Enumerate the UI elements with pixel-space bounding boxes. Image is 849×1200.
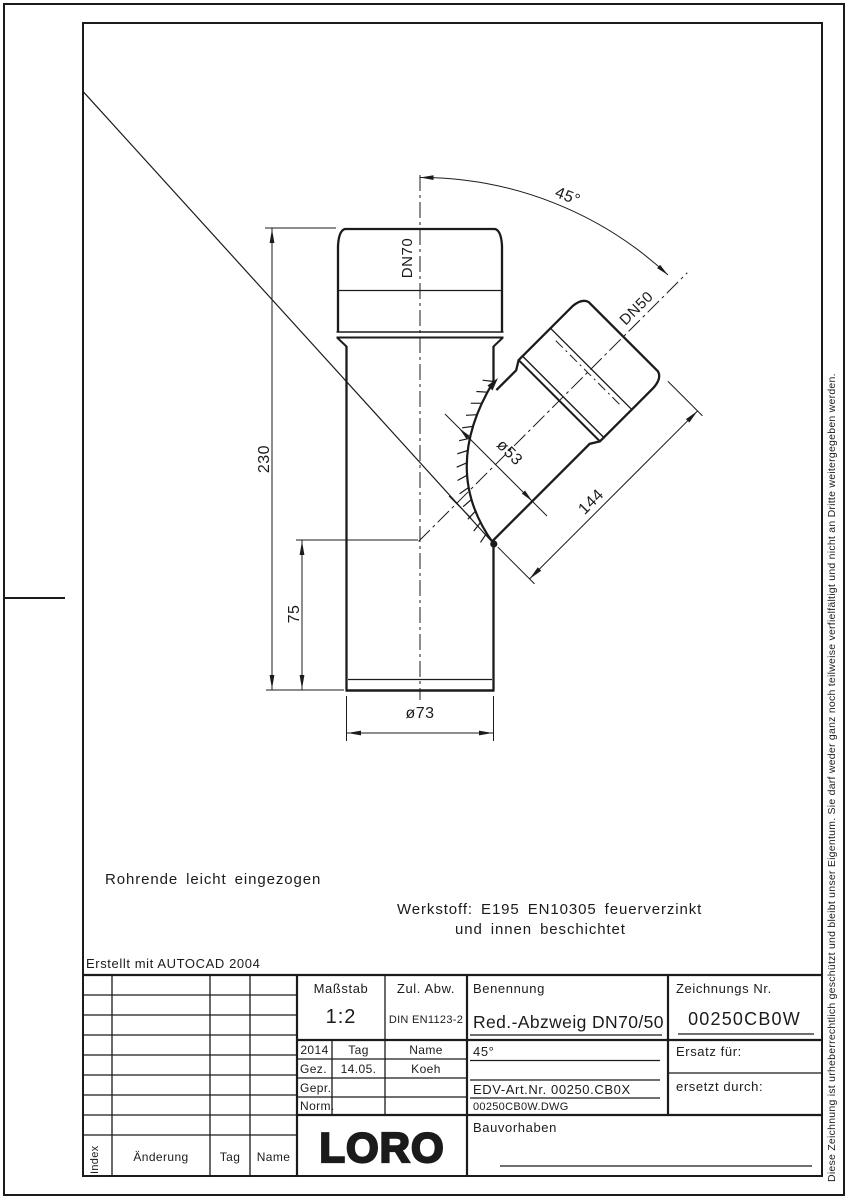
- dwg-filename: 00250CB0W.DWG: [473, 1101, 569, 1113]
- zeichnungs-nr-value: 00250CB0W: [668, 1009, 821, 1030]
- gez-name: Koeh: [385, 1062, 467, 1076]
- edv-art-nr: EDV-Art.Nr. 00250.CB0X: [473, 1082, 631, 1097]
- index-col-label: Index: [89, 1140, 101, 1174]
- gez-date: 14.05.: [332, 1062, 385, 1076]
- year-cell: 2014: [297, 1043, 332, 1057]
- tag-header-cell: Tag: [332, 1043, 385, 1057]
- norm-label: Norm.: [300, 1099, 335, 1113]
- benennung-value: Red.-Abzweig DN70/50: [473, 1012, 664, 1033]
- ersetzt-durch-label: ersetzt durch:: [676, 1079, 763, 1094]
- bauvorhaben-label: Bauvorhaben: [473, 1120, 557, 1135]
- loro-logo-text: LORO: [319, 1124, 444, 1171]
- gepr-label: Gepr.: [300, 1081, 331, 1095]
- gez-label: Gez.: [300, 1062, 327, 1076]
- angle-value-cell: 45°: [473, 1044, 494, 1059]
- aenderung-col-label: Änderung: [112, 1150, 210, 1164]
- tag-col-label: Tag: [210, 1150, 250, 1164]
- massstab-value: 1:2: [297, 1006, 385, 1029]
- loro-logo: LORO: [302, 1119, 462, 1173]
- drawing-sheet: Diese Zeichnung ist urheberrechtlich ges…: [0, 0, 849, 1200]
- zul-abw-value: DIN EN1123-2: [385, 1014, 467, 1026]
- name-col-label: Name: [250, 1150, 297, 1164]
- massstab-label: Maßstab: [297, 981, 385, 996]
- name-header-cell: Name: [385, 1043, 467, 1057]
- benennung-label: Benennung: [473, 981, 545, 996]
- zul-abw-label: Zul. Abw.: [385, 981, 467, 996]
- zeichnungs-nr-label: Zeichnungs Nr.: [676, 981, 772, 996]
- ersatz-fuer-label: Ersatz für:: [676, 1044, 742, 1059]
